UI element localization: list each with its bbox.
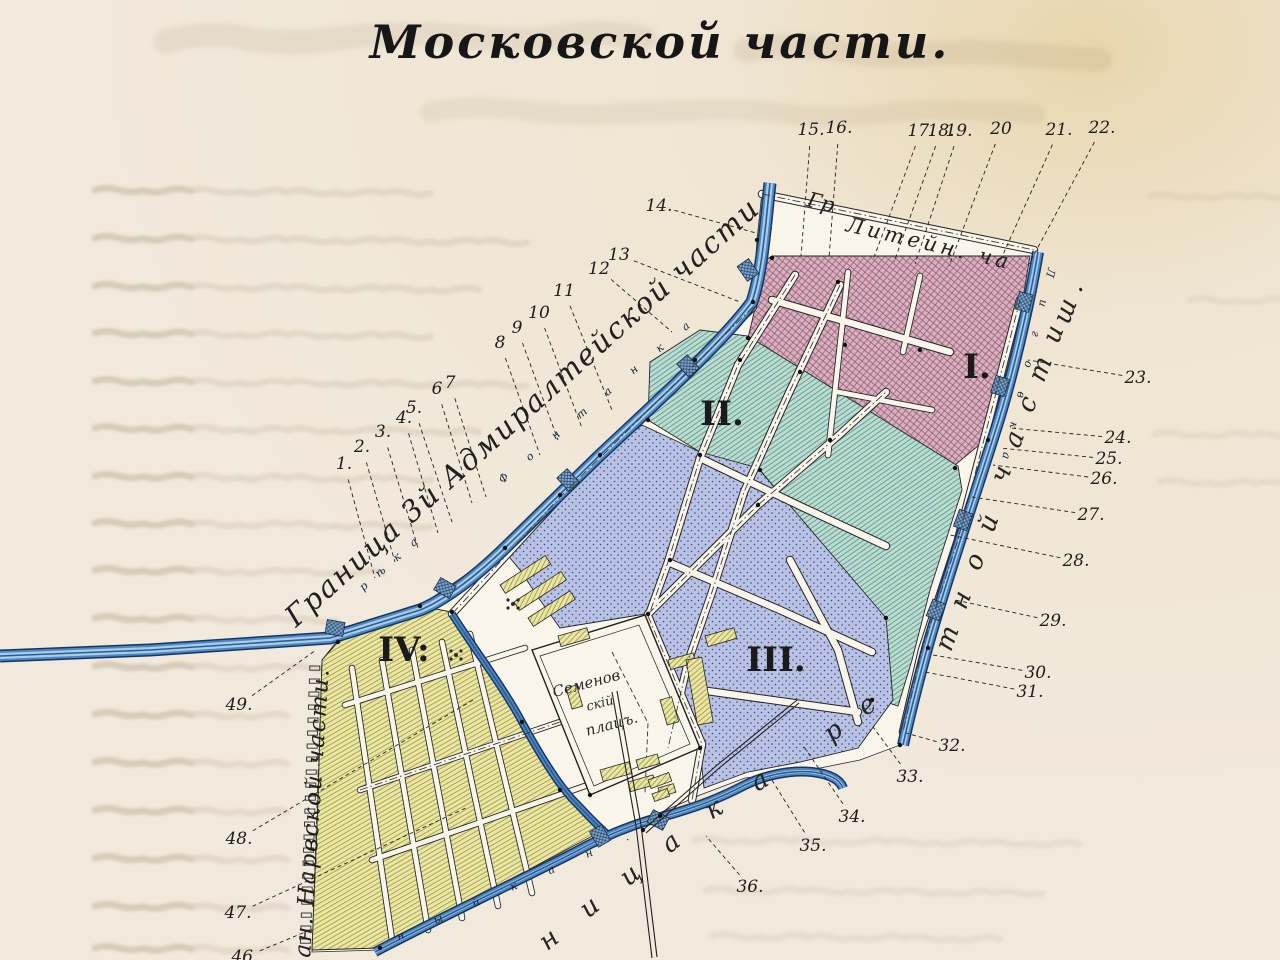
- district-i-label: I.: [963, 347, 991, 387]
- reference-number: 1.: [336, 454, 352, 474]
- reference-number: 9: [512, 318, 523, 338]
- ghost-text-line: [95, 712, 191, 716]
- reference-number: 8: [495, 333, 506, 353]
- ghost-text-line: [95, 760, 191, 764]
- ghost-text-line: [95, 474, 191, 478]
- ghost-text-line: [95, 946, 191, 950]
- reference-number: 34.: [838, 807, 865, 827]
- reference-number: 15.: [797, 120, 824, 140]
- reference-number: 12: [588, 259, 610, 279]
- intersection-dot: [836, 280, 840, 284]
- intersection-dot: [756, 503, 760, 507]
- intersection-dot: [520, 720, 524, 724]
- ghost-text-line: [95, 808, 191, 812]
- scanned-atlas-page: Граница 3й Адмиралтейской части. ан. Нар…: [0, 0, 1280, 960]
- intersection-dot: [698, 453, 702, 457]
- reference-number: 7: [445, 373, 456, 393]
- district-iii-label: III.: [746, 640, 806, 680]
- reference-number: 20: [989, 119, 1012, 139]
- reference-number: 13: [608, 245, 630, 265]
- intersection-dot: [646, 418, 650, 422]
- reference-number: 19.: [945, 121, 972, 141]
- ghost-text-line: [95, 664, 191, 668]
- intersection-dot: [558, 788, 562, 792]
- intersection-dot: [418, 604, 422, 608]
- reference-number: 2.: [353, 437, 370, 457]
- reference-number: 6: [432, 379, 443, 399]
- ghost-text-line: [95, 379, 191, 383]
- intersection-dot: [503, 546, 507, 550]
- reference-number: 5.: [406, 398, 422, 418]
- intersection-dot: [898, 743, 902, 747]
- intersection-dot: [884, 616, 888, 620]
- reference-number: 28.: [1061, 551, 1089, 571]
- reference-number: 31.: [1016, 682, 1043, 702]
- reference-number: 32.: [938, 736, 965, 756]
- bridge: [325, 620, 345, 637]
- district-iv-label: IV:: [378, 630, 429, 670]
- intersection-dot: [828, 438, 832, 442]
- intersection-dot: [558, 493, 562, 497]
- ghost-text-line: [95, 616, 191, 620]
- ghost-text-line: [95, 904, 191, 908]
- intersection-dot: [843, 343, 847, 347]
- page-title: Московской части.: [368, 15, 951, 69]
- moscow-district-map: Граница 3й Адмиралтейской части. ан. Нар…: [0, 0, 1280, 960]
- reference-number: 3.: [375, 422, 391, 442]
- intersection-dot: [378, 946, 382, 950]
- intersection-dot: [658, 814, 662, 818]
- intersection-dot: [668, 558, 672, 562]
- intersection-dot: [986, 438, 990, 442]
- reference-number: 16.: [825, 118, 852, 138]
- reference-number: 33.: [896, 767, 923, 787]
- reference-number: 46.: [230, 947, 258, 960]
- reference-number: 26.: [1089, 469, 1117, 489]
- intersection-dot: [758, 468, 762, 472]
- reference-number: 22.: [1087, 118, 1115, 138]
- intersection-dot: [588, 793, 592, 797]
- reference-number: 27.: [1076, 505, 1104, 525]
- reference-number: 29.: [1038, 611, 1066, 631]
- intersection-dot: [798, 370, 802, 374]
- reference-number: 24.: [1103, 428, 1131, 448]
- ghost-text-line: [95, 521, 191, 525]
- reference-number: 48.: [224, 829, 252, 849]
- intersection-dot: [755, 238, 759, 242]
- reference-number: 30.: [1024, 663, 1051, 683]
- reference-number: 10: [528, 303, 550, 323]
- intersection-dot: [646, 612, 650, 616]
- intersection-dot: [746, 336, 750, 340]
- reference-number: 47.: [223, 903, 251, 923]
- ghost-text-line: [95, 284, 191, 288]
- ghost-text-line: [95, 856, 191, 860]
- reference-number: 21.: [1044, 120, 1072, 140]
- intersection-dot: [641, 828, 645, 832]
- reference-number: 35.: [799, 836, 826, 856]
- intersection-dot: [450, 610, 454, 614]
- reference-number: 36.: [736, 877, 763, 897]
- ghost-text-line: [95, 568, 191, 572]
- intersection-dot: [698, 746, 702, 750]
- intersection-dot: [693, 358, 697, 362]
- ghost-text-line: [95, 331, 191, 335]
- intersection-dot: [926, 646, 930, 650]
- reference-number: 25.: [1094, 449, 1122, 469]
- reference-number: 23.: [1123, 368, 1151, 388]
- reference-number: 11: [553, 281, 575, 301]
- intersection-dot: [770, 256, 774, 260]
- intersection-dot: [751, 300, 755, 304]
- intersection-dot: [336, 640, 340, 644]
- intersection-dot: [918, 348, 922, 352]
- ghost-text-line: [95, 236, 191, 240]
- reference-number: 14.: [645, 196, 672, 216]
- ghost-text-line: [95, 188, 191, 192]
- ghost-text-line: [95, 426, 191, 430]
- intersection-dot: [953, 466, 957, 470]
- intersection-dot: [738, 358, 742, 362]
- reference-number: 49.: [224, 695, 252, 715]
- district-ii-label: II.: [700, 394, 744, 434]
- intersection-dot: [598, 453, 602, 457]
- ghost-text-line: [1150, 194, 1280, 199]
